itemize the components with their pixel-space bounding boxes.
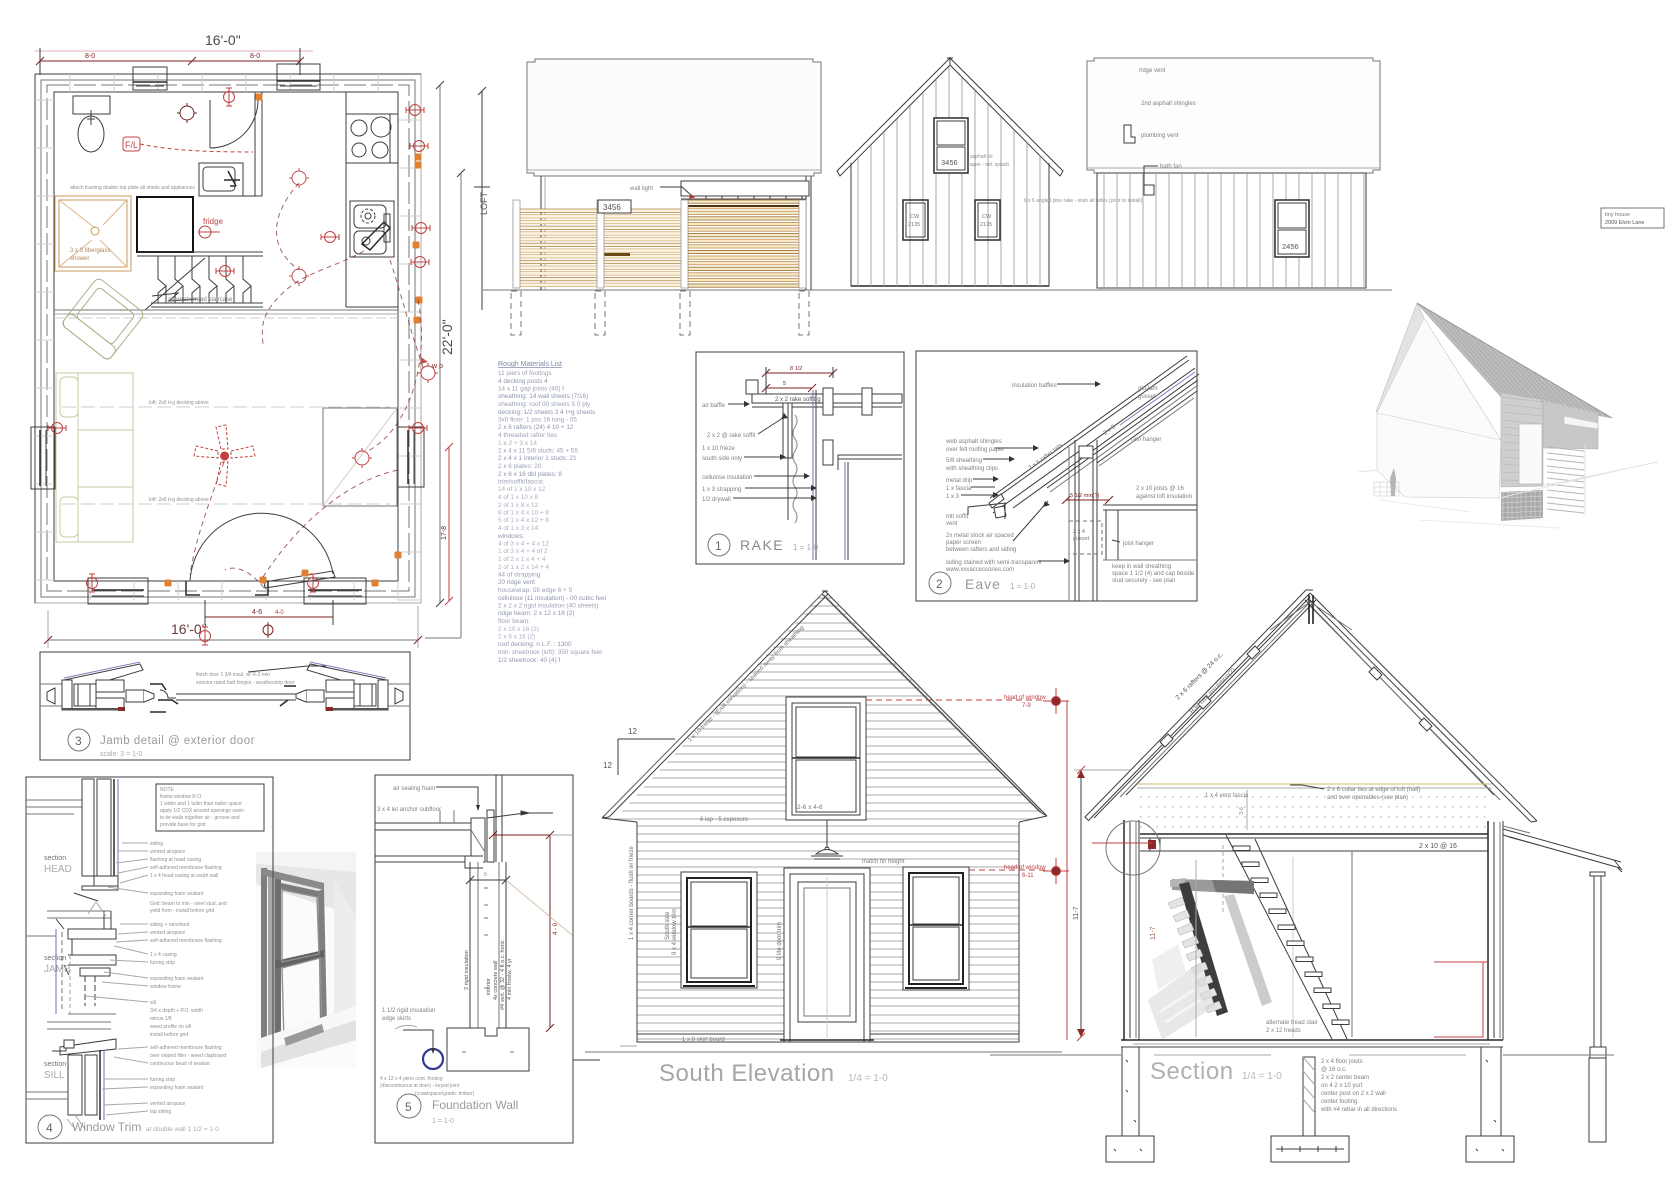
svg-text:2 of 1 x 2 x 14 + 4: 2 of 1 x 2 x 14 + 4 — [498, 564, 549, 571]
svg-text:insulation baffles: insulation baffles — [1012, 383, 1057, 389]
svg-text:provide base for grid: provide base for grid — [160, 822, 206, 828]
svg-text:5: 5 — [405, 1100, 412, 1114]
svg-text:metal drip: metal drip — [946, 478, 973, 484]
svg-text:16'-0": 16'-0" — [205, 32, 241, 48]
svg-text:2 x 6 rafters (24) 4 10 + 12: 2 x 6 rafters (24) 4 10 + 12 — [498, 424, 574, 431]
svg-text:paper - mtl. splash: paper - mtl. splash — [968, 162, 1009, 168]
svg-text:cellulose insulation: cellulose insulation — [702, 475, 752, 481]
svg-text:1 x 3: 1 x 3 — [946, 494, 960, 500]
svg-text:12: 12 — [603, 761, 612, 770]
svg-text:sheathing: roof 00 sheets 5 0: sheathing: roof 00 sheets 5 0 ply — [498, 401, 591, 408]
svg-text:1 1/2 rigid insulation: 1 1/2 rigid insulation — [382, 1008, 435, 1014]
svg-text:yield form - install before gr: yield form - install before grid — [150, 908, 214, 914]
svg-text:web asphalt shingles: web asphalt shingles — [945, 439, 1002, 445]
svg-text:14 x 11 gap joists (40) f: 14 x 11 gap joists (40) f — [498, 386, 564, 393]
svg-text:Section: Section — [1150, 1058, 1234, 1085]
svg-text:9 x 4 window trim: 9 x 4 window trim — [672, 909, 678, 955]
svg-text:RAKE: RAKE — [740, 537, 784, 553]
svg-text:@ 16 o.c.: @ 16 o.c. — [1321, 1067, 1347, 1073]
svg-text:9 lite door trim: 9 lite door trim — [777, 922, 783, 960]
svg-text:17-8: 17-8 — [441, 526, 448, 540]
svg-text:expanding foam sealant: expanding foam sealant — [150, 1085, 204, 1091]
svg-text:shower: shower — [70, 256, 89, 262]
svg-text:1 = 1-0: 1 = 1-0 — [793, 543, 819, 552]
svg-text:4x concrete wall: 4x concrete wall — [493, 961, 499, 1000]
svg-text:2 x 4 x 1 interior 1 studs: 21: 2 x 4 x 1 interior 1 studs: 21 — [498, 455, 577, 462]
svg-text:2 x 8 x 16 (2): 2 x 8 x 16 (2) — [498, 634, 535, 641]
svg-text:11 piers of footings: 11 piers of footings — [498, 370, 552, 377]
svg-text:1 x 3 strapping: 1 x 3 strapping — [702, 487, 741, 493]
svg-text:alternate tread staircase: alternate tread staircase — [168, 297, 233, 303]
svg-text:4 min frostw. 4 yr: 4 min frostw. 4 yr — [507, 958, 513, 1000]
svg-text:at double wall 1 1/2 = 1-0: at double wall 1 1/2 = 1-0 — [146, 1126, 219, 1133]
svg-text:w p: w p — [431, 363, 443, 370]
svg-text:apply 1/2 CDX around openings: apply 1/2 CDX around openings sewn — [160, 808, 244, 814]
svg-text:(crawlspace/grade: timber): (crawlspace/grade: timber) — [415, 1091, 475, 1097]
svg-text:expanding foam sealant: expanding foam sealant — [150, 891, 204, 897]
svg-text:floor beam:: floor beam: — [498, 618, 530, 625]
svg-text:2456: 2456 — [1282, 242, 1299, 251]
svg-text:decking: 1/2 sheets 3 4 t+g sh: decking: 1/2 sheets 3 4 t+g sheets — [498, 409, 595, 416]
svg-text:2 x 4 x 11 5/8 studs: 45 + 55: 2 x 4 x 11 5/8 studs: 45 + 55 — [498, 448, 578, 455]
svg-text:6-11: 6-11 — [1022, 873, 1034, 879]
svg-text:3/4 x depth + P.O. width: 3/4 x depth + P.O. width — [150, 1008, 203, 1014]
svg-text:Rough Materials List: Rough Materials List — [498, 361, 562, 368]
svg-text:16'-0": 16'-0" — [171, 621, 207, 637]
svg-text:section: section — [44, 955, 66, 962]
svg-text:furring strip: furring strip — [150, 960, 175, 966]
svg-text:siding + rainshout: siding + rainshout — [150, 922, 190, 928]
svg-text:4 of 3 x 4 + 4 x 12: 4 of 3 x 4 + 4 x 12 — [498, 541, 549, 548]
svg-text:3x0 floor: 1 pss 16 long - 05: 3x0 floor: 1 pss 16 long - 05 — [498, 417, 577, 424]
svg-text:head of window: head of window — [1004, 865, 1046, 871]
svg-text:2 x 10 @ 16: 2 x 10 @ 16 — [1419, 843, 1457, 850]
svg-text:5 of 1 x 4 x 12 + 8: 5 of 1 x 4 x 12 + 8 — [498, 517, 549, 524]
svg-text:paper screen: paper screen — [946, 540, 981, 546]
svg-text:self-adhered membrane flashing: self-adhered membrane flashing — [150, 865, 222, 871]
svg-text:exterior rated butt hinges - w: exterior rated butt hinges - weatherstri… — [196, 680, 295, 686]
svg-text:frame window R.O.: frame window R.O. — [160, 794, 203, 800]
svg-text:NOTE: NOTE — [160, 787, 175, 793]
svg-text:fridge: fridge — [203, 217, 224, 226]
svg-text:1 of 3 x 4 + 4 of 2: 1 of 3 x 4 + 4 of 2 — [498, 548, 548, 555]
svg-text:4 - 0: 4 - 0 — [553, 922, 559, 935]
svg-text:with #4 rebar in all direction: with #4 rebar in all directions — [1320, 1107, 1397, 1113]
svg-text:1 = 1-0: 1 = 1-0 — [1010, 582, 1036, 591]
svg-text:over sloped filler - weed clap: over sloped filler - weed clapboard — [150, 1053, 226, 1059]
svg-text:siding stained with semi-trans: siding stained with semi-transparent — [946, 560, 1042, 566]
svg-text:LOFT: LOFT — [479, 191, 489, 215]
svg-text:alternate tread stair: alternate tread stair — [1266, 1020, 1318, 1026]
svg-text:keep in wall sheathing: keep in wall sheathing — [1112, 564, 1171, 570]
svg-text:F/L: F/L — [125, 140, 138, 150]
svg-text:minus 1/8: minus 1/8 — [150, 1016, 172, 1022]
svg-text:stud securely - see plan: stud securely - see plan — [1112, 578, 1175, 584]
svg-text:3-6: 3-6 — [1239, 807, 1245, 815]
svg-text:2135: 2135 — [980, 222, 992, 228]
svg-text:expanding foam sealant: expanding foam sealant — [150, 976, 204, 982]
svg-text:space 1 1/2 (4) and cap beside: space 1 1/2 (4) and cap beside — [1112, 571, 1195, 577]
svg-text:section: section — [44, 1061, 66, 1068]
svg-text:1 x 8 skirt board: 1 x 8 skirt board — [682, 1037, 725, 1043]
svg-text:finish door 1 3/4 insul. w/ R-: finish door 1 3/4 insul. w/ R-2 min — [196, 672, 270, 678]
svg-text:joist hanger: joist hanger — [1122, 541, 1154, 547]
svg-text:2 x 2 rake soffit g: 2 x 2 rake soffit g — [775, 397, 821, 403]
svg-text:window frame: window frame — [150, 984, 181, 990]
svg-text:4 decking posts 4: 4 decking posts 4 — [498, 378, 548, 385]
svg-text:install before grid: install before grid — [150, 1032, 188, 1038]
svg-text:Eave: Eave — [965, 576, 1001, 592]
svg-text:trim/soffit/fascia:: trim/soffit/fascia: — [498, 479, 544, 486]
svg-text:vented airspace: vented airspace — [150, 930, 186, 936]
svg-text:sheathing: 14 wall sheets (7/1: sheathing: 14 wall sheets (7/16) — [498, 393, 588, 400]
svg-text:scale: 3 = 1-0: scale: 3 = 1-0 — [100, 751, 142, 758]
svg-text:SILL: SILL — [44, 1070, 65, 1081]
svg-text:1 = 1-0: 1 = 1-0 — [432, 1118, 454, 1125]
svg-text:2 x 2 x 2 rigid insulation (40: 2 x 2 x 2 rigid insulation (40 sheets) — [498, 603, 599, 610]
svg-text:gusset: gusset — [1073, 536, 1090, 542]
svg-text:2 x 6 plates: 20: 2 x 6 plates: 20 — [498, 463, 542, 470]
svg-text:vent: vent — [946, 521, 958, 527]
svg-text:2 x 4: 2 x 4 — [1073, 529, 1085, 535]
svg-text:4 x 12 x 4 piers cont. footing: 4 x 12 x 4 piers cont. footing — [380, 1076, 443, 1082]
svg-text:2135: 2135 — [908, 222, 920, 228]
svg-text:1 x fascia: 1 x fascia — [946, 486, 972, 492]
svg-text:6 x 6 angled pine rake - stain: 6 x 6 angled pine rake - stain all sides… — [1024, 198, 1142, 204]
svg-text:gusset: gusset — [1138, 394, 1156, 400]
svg-text:4: 4 — [46, 1121, 53, 1135]
svg-text:8-0: 8-0 — [250, 53, 260, 60]
svg-text:1 x 10 frieze: 1 x 10 frieze — [702, 446, 735, 452]
svg-text:asphalt oil: asphalt oil — [970, 154, 993, 160]
svg-text:2 x 2 center beam: 2 x 2 center beam — [1321, 1075, 1369, 1081]
svg-text:3 x 3 fiberglass: 3 x 3 fiberglass — [70, 248, 110, 254]
svg-text:1: 1 — [715, 539, 722, 553]
svg-text:1/2 sheetrock: 40 (4) f: 1/2 sheetrock: 40 (4) f — [498, 657, 560, 664]
svg-text:2 x 6 x 16 dbl plates: 8: 2 x 6 x 16 dbl plates: 8 — [498, 471, 562, 478]
svg-text:2 x 4 floor joists: 2 x 4 floor joists — [1321, 1059, 1363, 1065]
svg-text:south side only: south side only — [702, 456, 742, 462]
svg-text:flashing at head casing: flashing at head casing — [150, 857, 201, 863]
svg-text:self-adhered membrane flashing: self-adhered membrane flashing — [150, 938, 222, 944]
svg-text:rain hanger: rain hanger — [1131, 437, 1161, 443]
svg-text:windows:: windows: — [497, 533, 525, 540]
svg-text:4 of 1 x 10 x 8: 4 of 1 x 10 x 8 — [498, 494, 539, 501]
svg-text:3456: 3456 — [603, 203, 621, 212]
svg-text:www.xxxaccessories.com: www.xxxaccessories.com — [945, 567, 1014, 573]
svg-text:loft: 2x6 t+g decking above: loft: 2x6 t+g decking above — [149, 497, 209, 503]
svg-text:tiny house: tiny house — [1605, 212, 1630, 218]
svg-text:section: section — [44, 855, 66, 862]
svg-text:1 wider and 1 taller than nail: 1 wider and 1 taller than nailer space — [160, 801, 242, 807]
svg-text:Window Trim: Window Trim — [72, 1120, 141, 1134]
svg-text:air sealing foam: air sealing foam — [393, 786, 435, 792]
svg-text:continuous bead of sealant: continuous bead of sealant — [150, 1061, 210, 1067]
svg-text:ridge vent: ridge vent — [1139, 68, 1166, 74]
svg-text:Jamb detail @ exterior door: Jamb detail @ exterior door — [100, 735, 255, 747]
svg-text:mtl soffit: mtl soffit — [946, 514, 969, 520]
svg-text:2 x 10 x 16 (2): 2 x 10 x 16 (2) — [498, 626, 539, 633]
svg-text:loft: 2x6 t+g decking above: loft: 2x6 t+g decking above — [149, 400, 209, 406]
svg-text:5: 5 — [783, 381, 786, 387]
svg-text:vented airspace: vented airspace — [150, 1101, 186, 1107]
svg-text:against loft insulation: against loft insulation — [1136, 494, 1192, 500]
svg-text:2 x 6 collar ties at edge of l: 2 x 6 collar ties at edge of loft (half) — [1327, 787, 1420, 793]
svg-text:2 x 12 treads: 2 x 12 treads — [1266, 1028, 1301, 1034]
svg-text:8-0: 8-0 — [85, 53, 95, 60]
svg-text:22'-0": 22'-0" — [439, 319, 455, 355]
svg-text:Foundation Wall: Foundation Wall — [432, 1098, 518, 1112]
svg-text:and over openables (see plan): and over openables (see plan) — [1327, 795, 1408, 801]
svg-text:CW: CW — [910, 214, 920, 220]
svg-text:5 1/2 min(?): 5 1/2 min(?) — [1070, 493, 1100, 499]
svg-text:2nd asphalt shingles: 2nd asphalt shingles — [1141, 101, 1196, 107]
svg-text:siding: siding — [150, 841, 163, 847]
svg-text:3: 3 — [75, 734, 82, 748]
svg-text:2009 Elvin Lane: 2009 Elvin Lane — [1605, 220, 1644, 226]
svg-text:2 x 10 joists @ 16: 2 x 10 joists @ 16 — [1136, 486, 1184, 492]
svg-text:4-0: 4-0 — [275, 610, 284, 616]
svg-text:plumbing vent: plumbing vent — [1141, 133, 1179, 139]
svg-text:bath fan: bath fan — [1160, 164, 1182, 170]
svg-text:vented airspace: vented airspace — [150, 849, 186, 855]
svg-text:4 threaded rafter ties: 4 threaded rafter ties — [498, 432, 557, 439]
svg-text:8: 8 — [484, 872, 487, 878]
svg-text:2 x 2 @ rake soffit: 2 x 2 @ rake soffit — [707, 433, 756, 439]
svg-text:self-adhered membrane flashing: self-adhered membrane flashing — [150, 1045, 222, 1051]
svg-text:1 x 4 casing: 1 x 4 casing — [150, 952, 177, 958]
svg-text:2: 2 — [936, 577, 943, 591]
svg-text:44 of strapping: 44 of strapping — [498, 572, 541, 579]
svg-text:1 x 4 head casing at south wal: 1 x 4 head casing at south wall — [150, 873, 218, 879]
svg-text:ridge beam: 2 x 12 x 16 (2): ridge beam: 2 x 12 x 16 (2) — [498, 610, 574, 617]
svg-text:on 4 2 x 10 yurt: on 4 2 x 10 yurt — [1321, 1083, 1363, 1089]
svg-text:6 lap - 5 exposure: 6 lap - 5 exposure — [700, 817, 749, 823]
svg-text:center footing: center footing — [1321, 1099, 1357, 1105]
svg-text:2-6 x 4-6: 2-6 x 4-6 — [797, 804, 823, 811]
svg-text:attach framing double top pl: attach framing double top plate all shed… — [70, 185, 195, 191]
svg-text:Grid: beam to min - steel stud: Grid: beam to min - steel stud, and — [150, 901, 227, 907]
svg-text:furring strip: furring strip — [150, 1077, 175, 1083]
svg-text:CW: CW — [982, 214, 992, 220]
svg-text:14 of 1 x 10 x 12: 14 of 1 x 10 x 12 — [498, 486, 546, 493]
svg-text:1 x 4 corner boards - flush w/: 1 x 4 corner boards - flush w/ frieze — [629, 846, 635, 940]
svg-text:2 rigid insulation: 2 rigid insulation — [464, 950, 470, 990]
svg-text:edge skirts: edge skirts — [382, 1016, 411, 1022]
svg-text:(discontinuous at door) - keye: (discontinuous at door) - keyed joint — [380, 1083, 460, 1089]
svg-text:2 of 1 x 8 x 12: 2 of 1 x 8 x 12 — [498, 502, 539, 509]
svg-text:4-6: 4-6 — [252, 609, 262, 616]
svg-text:11-7: 11-7 — [1150, 926, 1157, 940]
svg-text:5/8 sheathing: 5/8 sheathing — [946, 458, 982, 464]
svg-text:11-7: 11-7 — [1073, 906, 1080, 920]
svg-text:lap siding: lap siding — [150, 1109, 171, 1115]
svg-text:match fin height: match fin height — [862, 859, 905, 865]
svg-text:air baffle: air baffle — [702, 403, 726, 409]
svg-text:1 of 2 x 1 x 4 + 4: 1 of 2 x 1 x 4 + 4 — [498, 556, 546, 563]
svg-text:4 of 1 x 3 x 14: 4 of 1 x 3 x 14 — [498, 525, 539, 532]
svg-text:HEAD: HEAD — [44, 864, 72, 875]
svg-text:with sheathing clips: with sheathing clips — [945, 466, 998, 472]
svg-text:3456: 3456 — [941, 158, 958, 167]
svg-text:between rafters and siding: between rafters and siding — [946, 547, 1016, 553]
svg-text:#4 vert. @ 32 - 4 ft o.c. hori: #4 vert. @ 32 - 4 ft o.c. horiz. — [500, 939, 506, 1010]
svg-text:1 x 4 vent fascia: 1 x 4 vent fascia — [1205, 793, 1249, 799]
svg-text:7-9: 7-9 — [1022, 703, 1031, 709]
svg-text:20 ridge vent: 20 ridge vent — [498, 579, 535, 586]
svg-text:wall light: wall light — [629, 186, 653, 192]
svg-text:min. sheetrock (loft): 350 squ: min. sheetrock (loft): 350 square feet — [498, 649, 602, 656]
svg-text:1 e 2 + 3 x 14: 1 e 2 + 3 x 14 — [498, 440, 537, 447]
svg-text:housewrap: 55 edge 6 + 9: housewrap: 55 edge 6 + 9 — [498, 587, 573, 594]
svg-text:South Elevation: South Elevation — [659, 1060, 835, 1087]
svg-text:3 x 4 let anchor subfloor: 3 x 4 let anchor subfloor — [377, 807, 441, 813]
svg-text:1/4 = 1-0: 1/4 = 1-0 — [848, 1073, 888, 1084]
svg-text:JAMB: JAMB — [44, 964, 71, 975]
svg-text:head of window: head of window — [1004, 695, 1046, 701]
svg-text:weed profile on sill: weed profile on sill — [150, 1024, 191, 1030]
svg-text:8 of 1 x 4 x 10 + 8: 8 of 1 x 4 x 10 + 8 — [498, 510, 549, 517]
svg-text:center post on 2 x 2 wall: center post on 2 x 2 wall — [1321, 1091, 1386, 1097]
svg-text:to tie walls together air - gr: to tie walls together air - groove and — [160, 815, 240, 821]
svg-text:roof decking: n L.F. : 1300: roof decking: n L.F. : 1300 — [498, 641, 572, 648]
svg-text:1/2 drywall: 1/2 drywall — [702, 497, 731, 503]
svg-text:2x metal stock air spaced: 2x metal stock air spaced — [946, 533, 1014, 539]
svg-text:glu-lam: glu-lam — [1138, 386, 1158, 392]
svg-text:8 1/2: 8 1/2 — [790, 366, 802, 372]
svg-text:1/4 = 1-0: 1/4 = 1-0 — [1242, 1071, 1282, 1082]
svg-text:South side: South side — [665, 911, 671, 940]
svg-text:sill: sill — [150, 1000, 156, 1006]
svg-text:cellulose (11 insulation) - 00: cellulose (11 insulation) - 00 cubic fee… — [498, 595, 606, 602]
svg-text:interior: interior — [486, 978, 492, 995]
svg-text:12: 12 — [628, 727, 637, 736]
